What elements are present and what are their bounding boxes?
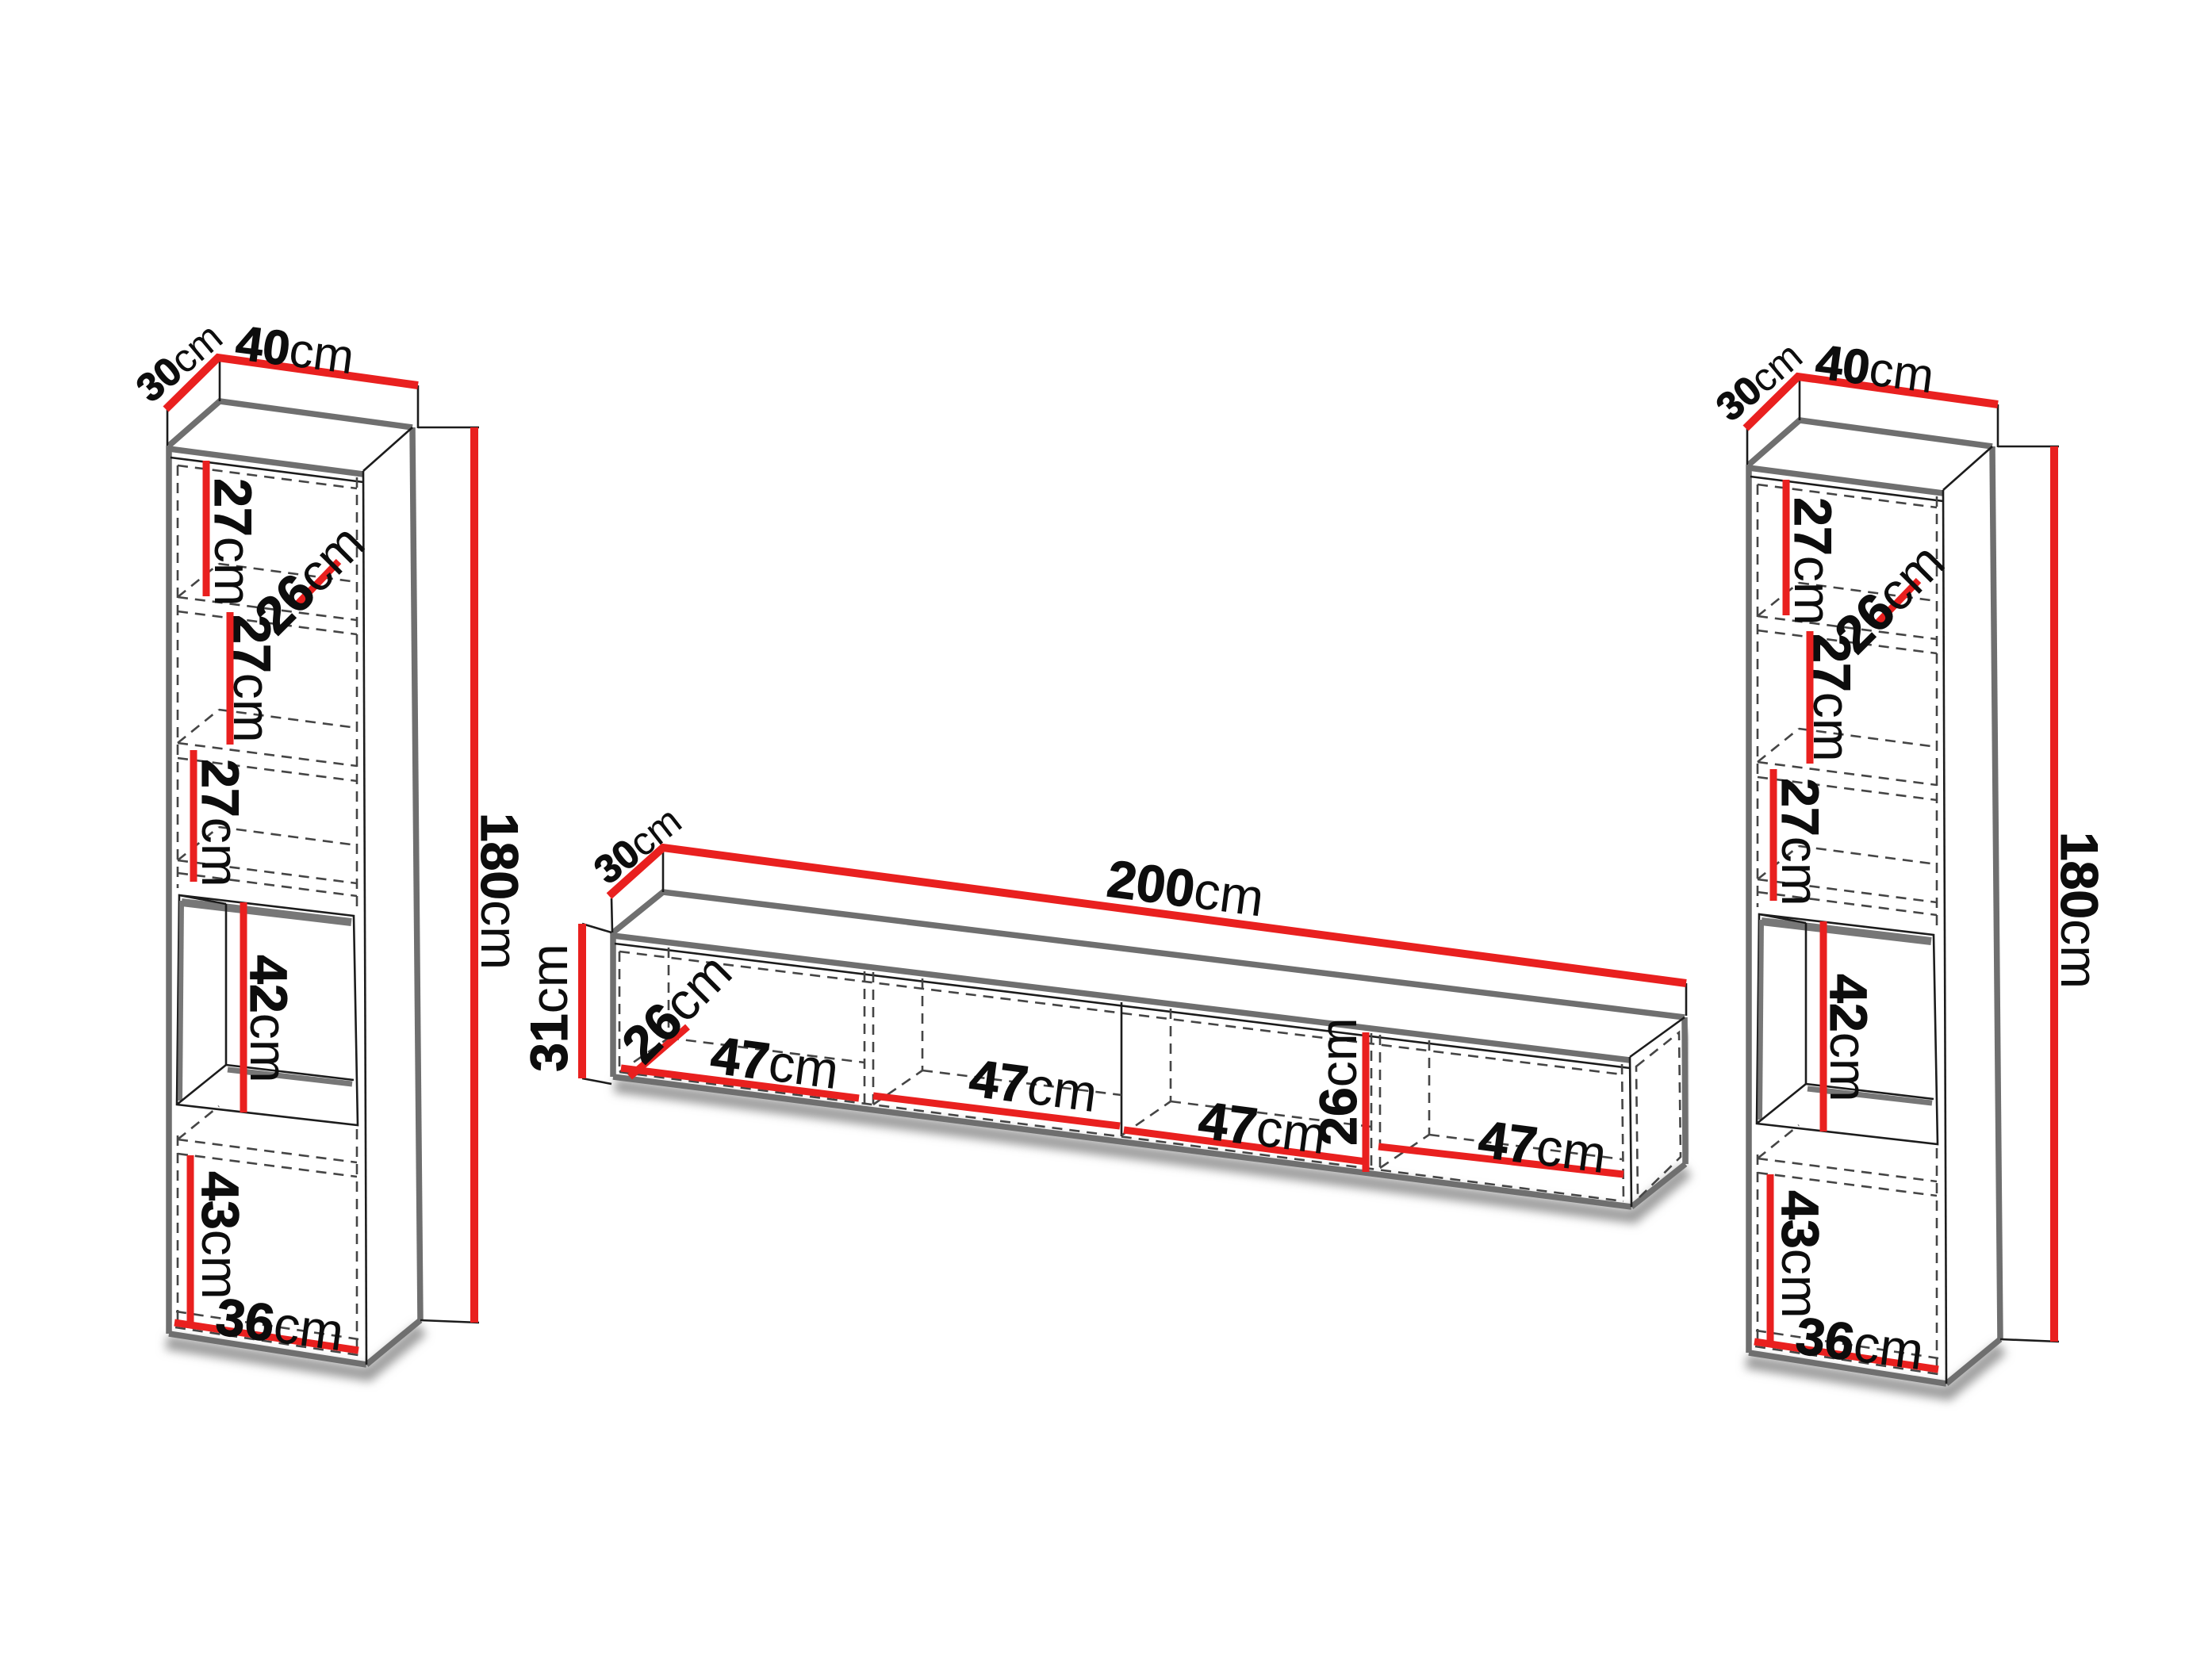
svg-text:26cm: 26cm xyxy=(1309,1017,1367,1145)
svg-text:31cm: 31cm xyxy=(519,944,578,1071)
